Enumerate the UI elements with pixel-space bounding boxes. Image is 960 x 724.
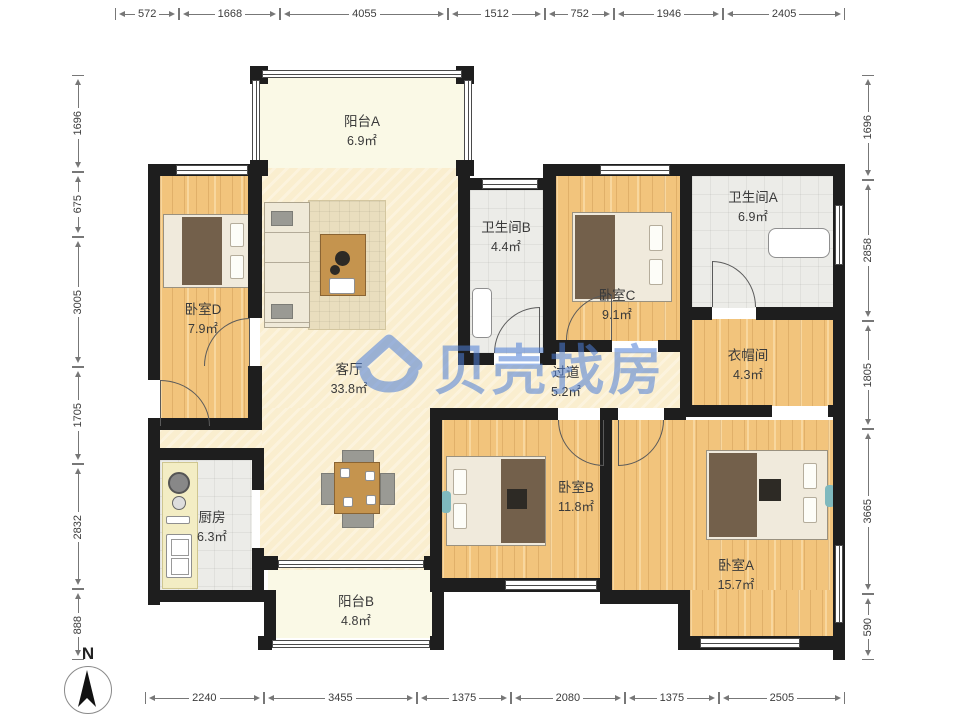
double-sink xyxy=(166,534,192,578)
dim-line xyxy=(356,698,407,699)
dim-arrow-icon xyxy=(75,76,81,85)
window xyxy=(176,165,248,175)
dim-segment: 1696 xyxy=(862,75,874,180)
dim-arrow-icon xyxy=(407,695,416,701)
dim-label: 1696 xyxy=(72,108,84,138)
dim-line xyxy=(155,698,189,699)
dim-label: 1805 xyxy=(862,360,874,390)
dim-line xyxy=(868,266,869,311)
dim-arrow-icon xyxy=(626,695,635,701)
north-arrow-icon xyxy=(64,666,110,712)
window-slider xyxy=(278,560,424,568)
plate xyxy=(340,468,350,478)
dining-chair xyxy=(342,513,374,528)
wall xyxy=(664,408,686,420)
bed-pillow xyxy=(803,463,817,489)
dim-segment: 2505 xyxy=(719,692,845,704)
dim-label: 752 xyxy=(568,8,592,20)
wall xyxy=(692,164,845,176)
dim-line xyxy=(797,698,835,699)
dim-label: 1668 xyxy=(215,8,245,20)
wall xyxy=(680,405,772,417)
dim-arrow-icon xyxy=(418,695,427,701)
dim-line xyxy=(733,14,769,15)
plate xyxy=(366,495,376,505)
dim-segment: 2080 xyxy=(511,692,625,704)
dim-line xyxy=(220,698,254,699)
wall xyxy=(458,178,470,365)
dim-line xyxy=(868,439,869,496)
window xyxy=(700,638,800,648)
dim-line xyxy=(458,14,481,15)
dim-segment: 572 xyxy=(115,8,179,20)
dim-segment: 2832 xyxy=(72,464,84,589)
dim-label: 1375 xyxy=(657,692,687,704)
dim-arrow-icon xyxy=(709,695,718,701)
dim-arrow-icon xyxy=(75,368,81,377)
window xyxy=(272,640,430,648)
dim-arrow-icon xyxy=(75,173,81,182)
dim-line xyxy=(684,14,713,15)
dim-arrow-icon xyxy=(865,170,871,179)
dim-line xyxy=(78,85,79,108)
dim-line xyxy=(78,542,79,579)
dim-segment: 1512 xyxy=(448,8,545,20)
dim-segment: 4055 xyxy=(280,8,448,20)
washbasin-bathroom-b xyxy=(472,288,492,338)
dim-label: 1705 xyxy=(72,400,84,430)
dim-line xyxy=(78,247,79,287)
bathtub-bathroom-a xyxy=(768,228,830,258)
wall xyxy=(148,448,264,460)
wall xyxy=(600,590,690,604)
dim-arrow-icon xyxy=(615,695,624,701)
dim-label: 3455 xyxy=(325,692,355,704)
dim-line xyxy=(868,85,869,112)
bed-bedroom-d xyxy=(163,214,251,288)
kettle xyxy=(335,251,350,266)
wall xyxy=(543,340,612,352)
sink-basin xyxy=(171,539,189,556)
dim-line xyxy=(624,14,653,15)
dim-label: 675 xyxy=(72,192,84,216)
label-bedroom-a: 卧室A15.7㎡ xyxy=(718,556,755,594)
dim-arrow-icon xyxy=(438,11,447,17)
dim-segment: 2240 xyxy=(145,692,264,704)
wall xyxy=(692,307,712,320)
dim-arrow-icon xyxy=(724,11,733,17)
dim-line xyxy=(729,698,767,699)
dim-line xyxy=(380,14,439,15)
dim-line xyxy=(159,14,169,15)
dim-label: 1375 xyxy=(449,692,479,704)
dim-line xyxy=(799,14,835,15)
dim-arrow-icon xyxy=(254,695,263,701)
dim-segment: 1375 xyxy=(625,692,719,704)
dim-label: 590 xyxy=(862,615,874,639)
dim-line xyxy=(635,698,657,699)
tray xyxy=(329,278,355,294)
cup xyxy=(330,265,340,275)
dim-line xyxy=(189,14,214,15)
compass-circle xyxy=(64,666,112,714)
window xyxy=(252,80,260,164)
bed-pillow xyxy=(803,497,817,523)
sink-bowl-icon xyxy=(172,496,186,510)
dim-line xyxy=(78,377,79,400)
label-bedroom-c: 卧室C9.1㎡ xyxy=(599,286,636,324)
dim-segment: 675 xyxy=(72,172,84,237)
plate xyxy=(343,497,353,507)
dim-line xyxy=(125,14,135,15)
dimension-chain-top: 57216684055151275219462405 xyxy=(115,8,845,22)
dim-line xyxy=(868,604,869,615)
window xyxy=(482,179,538,189)
wall-post xyxy=(258,636,272,650)
dim-segment: 3005 xyxy=(72,237,84,367)
dimension-chain-bottom: 224034551375208013752505 xyxy=(145,692,845,706)
dim-segment: 1668 xyxy=(179,8,280,20)
dim-label: 3665 xyxy=(862,496,874,526)
dim-label: 2832 xyxy=(72,512,84,542)
dim-line xyxy=(78,431,79,454)
room-floor-entry xyxy=(160,428,262,450)
dim-arrow-icon xyxy=(75,227,81,236)
dim-line xyxy=(274,698,325,699)
wall xyxy=(680,164,692,352)
dim-arrow-icon xyxy=(535,11,544,17)
dim-arrow-icon xyxy=(865,322,871,331)
dim-arrow-icon xyxy=(865,584,871,593)
dim-arrow-icon xyxy=(865,181,871,190)
dim-arrow-icon xyxy=(713,11,722,17)
wall xyxy=(756,307,845,320)
dim-line xyxy=(868,143,869,170)
dim-arrow-icon xyxy=(865,595,871,604)
bed-blanket xyxy=(182,217,222,285)
wall xyxy=(148,590,276,602)
dim-arrow-icon xyxy=(865,76,871,85)
kitchen-shelf xyxy=(166,516,190,524)
bed-pillow xyxy=(649,225,663,251)
dim-line xyxy=(868,190,869,235)
dim-line xyxy=(78,317,79,357)
coffee-table xyxy=(320,234,366,296)
dim-arrow-icon xyxy=(281,11,290,17)
label-balcony-b: 阳台B4.8㎡ xyxy=(338,592,374,630)
sofa-cushion xyxy=(271,211,293,226)
dim-arrow-icon xyxy=(835,695,844,701)
label-hallway: 过道5.2㎡ xyxy=(551,363,581,401)
dim-arrow-icon xyxy=(720,695,729,701)
dim-arrow-icon xyxy=(835,11,844,17)
floorplan: 57216684055151275219462405 2240345513752… xyxy=(0,0,960,724)
dim-label: 2858 xyxy=(862,235,874,265)
dim-line xyxy=(245,14,270,15)
wall xyxy=(828,405,845,417)
dim-label: 2080 xyxy=(553,692,583,704)
dining-table xyxy=(334,462,380,514)
dim-line xyxy=(479,698,501,699)
wall xyxy=(458,353,494,365)
window xyxy=(505,580,597,590)
dim-segment: 590 xyxy=(862,594,874,660)
dim-arrow-icon xyxy=(865,311,871,320)
wall xyxy=(248,164,262,318)
window xyxy=(464,80,472,164)
dim-segment: 3455 xyxy=(264,692,417,704)
dimension-chain-right: 1696285818053665590 xyxy=(862,75,876,660)
dim-arrow-icon xyxy=(546,11,555,17)
dim-line xyxy=(868,639,869,650)
dim-arrow-icon xyxy=(75,590,81,599)
dim-line xyxy=(290,14,349,15)
wall xyxy=(252,548,264,590)
dim-segment: 1696 xyxy=(72,75,84,172)
wall-post xyxy=(264,556,278,570)
sofa-cushion xyxy=(271,304,293,319)
dim-arrow-icon xyxy=(865,419,871,428)
dimension-chain-left: 1696675300517052832888 xyxy=(72,75,86,660)
dim-segment: 1805 xyxy=(862,321,874,430)
dim-segment: 1705 xyxy=(72,367,84,464)
window xyxy=(600,165,670,175)
dim-segment: 752 xyxy=(545,8,614,20)
dim-arrow-icon xyxy=(75,454,81,463)
dim-segment: 2405 xyxy=(723,8,845,20)
wall xyxy=(148,164,160,380)
bed-bedroom-a xyxy=(706,450,828,540)
label-bathroom-b: 卫生间B4.4㎡ xyxy=(481,218,531,256)
dim-line xyxy=(868,331,869,360)
dim-arrow-icon xyxy=(146,695,155,701)
dim-line xyxy=(583,698,615,699)
label-living-room: 客厅33.8㎡ xyxy=(331,360,368,398)
bed-pillow xyxy=(230,255,244,279)
bed-pillow xyxy=(649,259,663,285)
dim-arrow-icon xyxy=(75,357,81,366)
dim-line xyxy=(687,698,709,699)
dining-chair xyxy=(380,473,395,505)
bed-pillow xyxy=(453,469,467,495)
wall-post xyxy=(424,556,438,570)
bed-lamp xyxy=(441,491,451,513)
dim-line xyxy=(521,698,553,699)
room-floor-hall-west xyxy=(458,365,556,408)
wall xyxy=(543,164,556,353)
dim-line xyxy=(78,182,79,192)
dim-arrow-icon xyxy=(169,11,178,17)
dim-arrow-icon xyxy=(865,430,871,439)
dim-label: 2505 xyxy=(767,692,797,704)
bed-decor xyxy=(507,489,527,509)
dim-arrow-icon xyxy=(865,650,871,659)
dim-segment: 2858 xyxy=(862,180,874,320)
bed-pillow xyxy=(453,503,467,529)
dim-label: 1696 xyxy=(862,112,874,142)
dim-segment: 1375 xyxy=(417,692,511,704)
window xyxy=(262,70,462,78)
bed-bedroom-b xyxy=(446,456,546,546)
wall-post xyxy=(430,636,444,650)
bed-decor xyxy=(759,479,781,501)
dim-line xyxy=(78,474,79,511)
dim-label: 3005 xyxy=(72,287,84,317)
dim-arrow-icon xyxy=(501,695,510,701)
dim-line xyxy=(512,14,535,15)
dim-line xyxy=(868,527,869,584)
dim-arrow-icon xyxy=(75,162,81,171)
label-bedroom-d: 卧室D7.9㎡ xyxy=(185,300,222,338)
dim-line xyxy=(78,217,79,227)
dim-arrow-icon xyxy=(604,11,613,17)
dim-label: 1946 xyxy=(654,8,684,20)
dim-arrow-icon xyxy=(75,465,81,474)
window xyxy=(835,545,843,623)
plate xyxy=(365,471,375,481)
label-balcony-a: 阳台A6.9㎡ xyxy=(344,112,380,150)
label-kitchen: 厨房6.3㎡ xyxy=(197,508,227,546)
dim-label: 2405 xyxy=(769,8,799,20)
dim-line xyxy=(78,599,79,612)
dim-arrow-icon xyxy=(116,11,125,17)
dim-segment: 3665 xyxy=(862,429,874,594)
label-cloakroom: 衣帽间4.3㎡ xyxy=(728,346,769,384)
bed-blanket xyxy=(709,453,757,537)
room-floor-bedroom-a-south xyxy=(690,590,833,638)
dim-arrow-icon xyxy=(180,11,189,17)
dim-label: 888 xyxy=(72,613,84,637)
dim-arrow-icon xyxy=(449,11,458,17)
dim-arrow-icon xyxy=(615,11,624,17)
dim-label: 4055 xyxy=(349,8,379,20)
bed-pillow xyxy=(230,223,244,247)
dim-arrow-icon xyxy=(512,695,521,701)
wall xyxy=(252,448,264,490)
compass: N xyxy=(60,644,116,714)
dim-label: 2240 xyxy=(189,692,219,704)
dim-arrow-icon xyxy=(75,238,81,247)
stove-burner-icon xyxy=(168,472,190,494)
dim-arrow-icon xyxy=(265,695,274,701)
dim-line xyxy=(555,14,568,15)
label-bathroom-a: 卫生间A6.9㎡ xyxy=(728,188,778,226)
dim-arrow-icon xyxy=(270,11,279,17)
dim-line xyxy=(78,139,79,162)
north-label: N xyxy=(60,644,116,664)
dim-line xyxy=(592,14,605,15)
dim-segment: 1946 xyxy=(614,8,723,20)
dim-line xyxy=(427,698,449,699)
dim-arrow-icon xyxy=(75,579,81,588)
wall xyxy=(430,408,558,420)
label-bedroom-b: 卧室B11.8㎡ xyxy=(558,478,594,516)
dim-line xyxy=(868,390,869,419)
dim-label: 572 xyxy=(135,8,159,20)
dim-label: 1512 xyxy=(481,8,511,20)
window xyxy=(835,205,843,265)
sink-basin xyxy=(171,558,189,575)
